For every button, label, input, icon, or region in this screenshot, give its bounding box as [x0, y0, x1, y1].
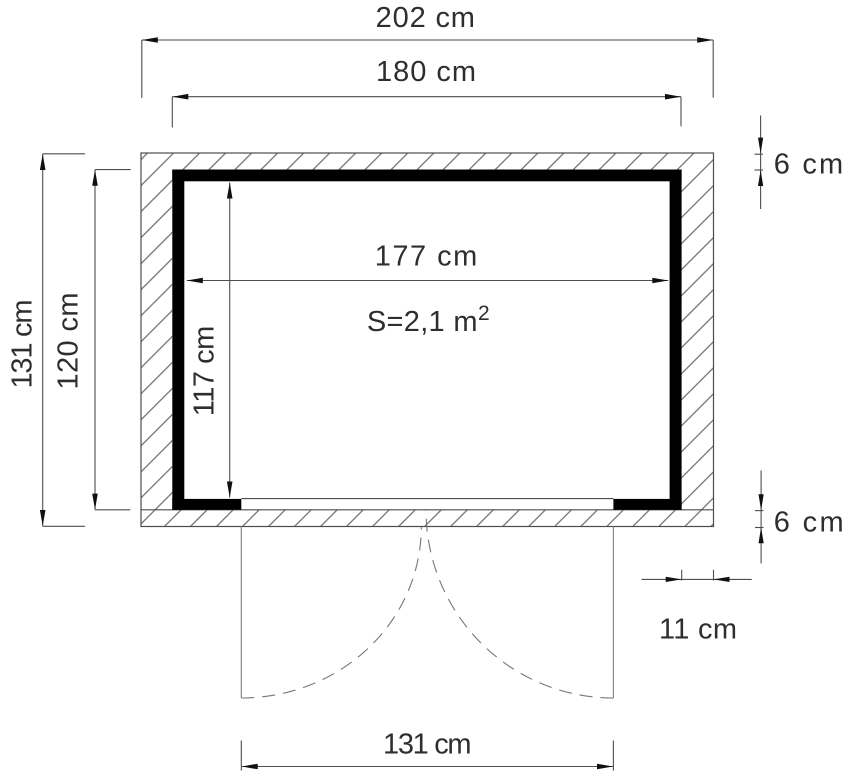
svg-text:2: 2: [478, 302, 490, 325]
svg-text:6 cm: 6 cm: [774, 148, 843, 180]
svg-text:11 cm: 11 cm: [659, 614, 737, 646]
svg-text:180 cm: 180 cm: [376, 56, 476, 88]
svg-text:6 cm: 6 cm: [774, 506, 844, 538]
svg-text:117 cm: 117 cm: [189, 326, 221, 417]
svg-text:177 cm: 177 cm: [375, 241, 478, 273]
svg-text:131 cm: 131 cm: [383, 729, 472, 761]
svg-text:S=2,1 m: S=2,1 m: [367, 306, 478, 338]
svg-text:131 cm: 131 cm: [7, 300, 39, 389]
svg-text:202 cm: 202 cm: [376, 2, 475, 34]
svg-text:120 cm: 120 cm: [53, 293, 85, 390]
